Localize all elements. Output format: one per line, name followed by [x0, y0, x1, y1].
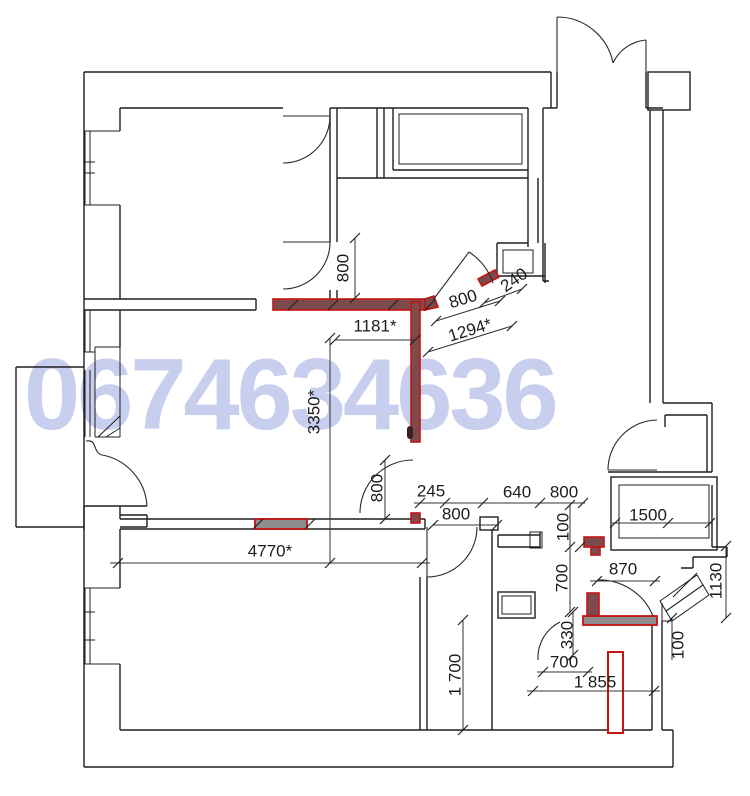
floor-plan-canvas: 0674634636 [0, 0, 750, 796]
balcony [16, 367, 84, 527]
red-bath-horizontal [583, 616, 657, 625]
red-duct-outline [608, 652, 623, 733]
closet-top [399, 114, 522, 164]
lift-room-inner [619, 485, 709, 538]
window-mid-left [84, 310, 95, 352]
red-gray-segment [255, 519, 307, 529]
red-bath-vertical [587, 593, 599, 617]
entry-pillar [648, 72, 690, 110]
interior-walls [84, 108, 727, 730]
red-square [411, 513, 420, 523]
floor-plan-drawing [0, 0, 750, 796]
lift-room [611, 477, 717, 550]
door-living-room [427, 527, 477, 577]
red-tee-top [584, 537, 604, 547]
door-bathroom [597, 580, 653, 616]
door-kitchen [538, 622, 560, 660]
wall-mark [407, 426, 413, 439]
flue-shaft [95, 347, 120, 437]
windows-and-balcony [16, 108, 120, 730]
doors [86, 17, 657, 660]
door-right-room [608, 420, 657, 470]
shaft-box [503, 250, 533, 273]
red-wall-horizontal [273, 299, 425, 310]
door-balcony [86, 441, 147, 506]
door-jamb [480, 517, 498, 530]
red-tee-stub [591, 547, 600, 555]
door-bedroom-bottom [283, 242, 330, 289]
door-entrance-double [557, 17, 646, 73]
door-hall [360, 460, 413, 513]
window-top-left [84, 131, 120, 205]
closet-lower-inner [502, 596, 531, 614]
stairs [660, 573, 709, 621]
balcony-window [85, 370, 90, 437]
red-wall-vertical [411, 302, 420, 442]
red-walls [255, 270, 657, 733]
window-bottom-left [84, 588, 120, 664]
door-bedroom-top [283, 116, 330, 163]
